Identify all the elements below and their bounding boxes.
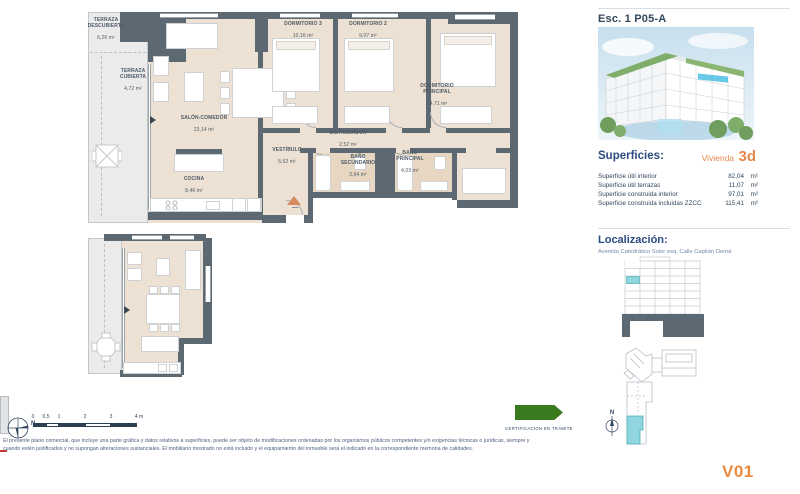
door-opening <box>386 128 402 133</box>
scale-segment <box>85 423 111 427</box>
version-label: V01 <box>722 462 754 482</box>
exterior-cutout <box>457 208 516 223</box>
coffee-table <box>156 258 170 276</box>
wall-segment <box>255 12 268 52</box>
armchair <box>127 252 142 265</box>
appliance <box>247 198 261 212</box>
address-text: Avenida Catedrático Soler esq. Calle Cap… <box>598 249 731 255</box>
scale-segment <box>46 423 59 427</box>
areas-table: Superficie útil interior 82,04 m² Superf… <box>598 172 758 208</box>
appliance <box>169 364 178 372</box>
room-label-salon-comedor: SALÓN-COMEDOR 23,14 m² <box>181 109 228 139</box>
scale-segment <box>33 423 46 427</box>
door-opening <box>430 128 446 133</box>
appliance <box>158 364 167 372</box>
disclaimer-line-2: cuando estén justificados y no supongan … <box>3 446 473 454</box>
terrace-dashed-line <box>101 56 102 216</box>
disclaimer-line-1: El presente plano comercial, que incluye… <box>3 438 529 446</box>
room-label-terraza-descubierta: TERRAZA DESCUBIERTA 6,26 m² <box>88 11 125 47</box>
window <box>170 235 194 240</box>
wall-segment <box>510 12 518 208</box>
localizacion-heading: Localización: <box>598 234 668 246</box>
chair <box>160 324 169 332</box>
svg-text:N: N <box>610 410 614 416</box>
terrace-divider-line <box>90 52 146 53</box>
certification-label: CERTIFICACIÓN EN TRÁMITE <box>503 426 575 431</box>
panel-top-divider <box>598 8 790 9</box>
window <box>455 14 495 20</box>
window <box>132 235 162 240</box>
area-row: Superficie útil terrazas 11,07 m² <box>598 181 758 190</box>
chair <box>220 71 230 83</box>
elevation-diagram <box>618 256 708 340</box>
vivienda-number: 3d <box>738 148 756 165</box>
room-label-dormitorio-3: DORMITORIO 3 10,16 m² <box>284 15 322 45</box>
scale-segment <box>59 423 85 427</box>
wall-segment <box>457 200 510 208</box>
chair <box>149 324 158 332</box>
sink <box>206 201 220 210</box>
coffee-table <box>184 72 204 102</box>
superficies-heading: Superficies: <box>598 150 664 162</box>
terrace-table-icon <box>92 140 122 172</box>
chair <box>160 286 169 294</box>
chair <box>171 286 180 294</box>
room-label-vestibulo: VESTÍBULO 5,52 m² <box>272 141 302 171</box>
area-row: Superficie construida incluidas ZZCC 115… <box>598 199 758 208</box>
chair <box>149 286 158 294</box>
exterior-cutout <box>184 344 212 375</box>
dining-table <box>146 294 180 324</box>
exterior-cutout <box>313 198 457 223</box>
wall-segment <box>148 212 262 220</box>
wall-segment <box>452 148 457 200</box>
area-row: Superficie útil interior 82,04 m² <box>598 172 758 181</box>
area-row: Superficie construida interior 97,01 m² <box>598 190 758 199</box>
door-opening <box>466 148 496 153</box>
armchair <box>153 56 169 76</box>
pillow <box>444 36 492 45</box>
wall-segment <box>333 12 338 133</box>
wall-segment <box>258 128 510 133</box>
plan-sheet: TERRAZA DESCUBIERTA 6,26 m² TERRAZA CUBI… <box>0 0 800 494</box>
armchair <box>127 268 142 281</box>
north-compass-icon: N <box>606 410 618 436</box>
shower <box>315 155 331 191</box>
bathroom-sink <box>420 181 448 191</box>
scale-segment <box>111 423 137 427</box>
sofa <box>185 250 201 290</box>
site-plan-diagram: N <box>600 344 706 456</box>
room-label-dormitorio-principal: DORMITORIO PRINCIPAL 14,71 m² <box>420 77 453 113</box>
kitchen-island <box>141 336 179 352</box>
chair <box>171 324 180 332</box>
room-label-bano-secundario: BAÑO SECUNDARIO 3,94 m² <box>341 148 376 184</box>
terrace-glazing <box>148 64 151 210</box>
armchair <box>153 82 169 102</box>
section-marker-icon <box>124 306 130 314</box>
wardrobe <box>272 106 318 124</box>
shaft-block <box>375 148 395 198</box>
certification-arrow-icon <box>515 405 563 420</box>
wall-segment <box>308 148 313 218</box>
sofa <box>166 23 218 49</box>
scale-bar: 0 0,5 1 2 3 4 m <box>33 414 149 432</box>
entrance-marker-icon <box>287 196 301 205</box>
round-table-icon <box>91 332 121 362</box>
wardrobe <box>344 106 390 124</box>
room-label-bano-principal: BAÑO PRINCIPAL 4,03 m² <box>396 144 423 180</box>
wardrobe <box>462 168 506 194</box>
building-render-illustration <box>598 27 754 140</box>
room-label-dormitorio-2: DORMITORIO 2 9,07 m² <box>349 15 387 45</box>
window <box>205 266 211 302</box>
highlighted-unit <box>627 277 640 284</box>
window <box>160 13 218 18</box>
entry-door-opening <box>286 215 304 223</box>
appliance <box>232 198 246 212</box>
door-opening <box>300 128 316 133</box>
highlighted-unit <box>627 416 643 444</box>
panel-divider <box>598 228 790 229</box>
vivienda-code: Vivienda 3d <box>660 148 756 166</box>
entrance-tick <box>292 207 298 208</box>
plan-reference-title: Esc. 1 P05-A <box>598 13 666 25</box>
certification-block: CERTIFICACIÓN EN TRÁMITE <box>503 405 575 431</box>
hob-icon <box>164 200 184 210</box>
section-marker-icon <box>150 116 156 124</box>
room-label-cocina: COCINA 8,46 m² <box>184 170 204 200</box>
vivienda-label: Vivienda <box>702 153 734 163</box>
room-label-terraza-cubierta: TERRAZA CUBIERTA 4,72 m² <box>120 62 146 98</box>
chair <box>220 87 230 99</box>
wall-segment <box>313 192 452 198</box>
toilet <box>434 156 446 170</box>
